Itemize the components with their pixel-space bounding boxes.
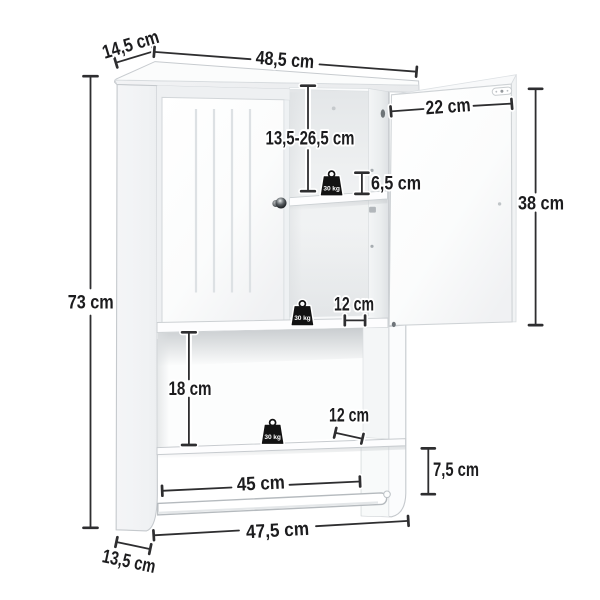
- svg-text:13,5-26,5 cm: 13,5-26,5 cm: [266, 128, 355, 149]
- svg-text:12 cm: 12 cm: [329, 405, 369, 426]
- svg-text:30 kg: 30 kg: [323, 185, 339, 192]
- svg-text:22 cm: 22 cm: [425, 95, 471, 119]
- svg-text:18 cm: 18 cm: [169, 379, 212, 400]
- svg-text:7,5 cm: 7,5 cm: [433, 460, 479, 481]
- svg-text:45 cm: 45 cm: [236, 472, 285, 495]
- svg-text:6,5 cm: 6,5 cm: [371, 174, 421, 195]
- svg-text:73 cm: 73 cm: [68, 293, 114, 314]
- svg-text:38 cm: 38 cm: [518, 193, 564, 214]
- svg-text:48,5 cm: 48,5 cm: [255, 48, 315, 73]
- svg-text:30 kg: 30 kg: [264, 434, 280, 441]
- svg-text:47,5 cm: 47,5 cm: [246, 519, 310, 543]
- svg-text:30 kg: 30 kg: [294, 315, 310, 322]
- svg-text:12 cm: 12 cm: [334, 295, 374, 316]
